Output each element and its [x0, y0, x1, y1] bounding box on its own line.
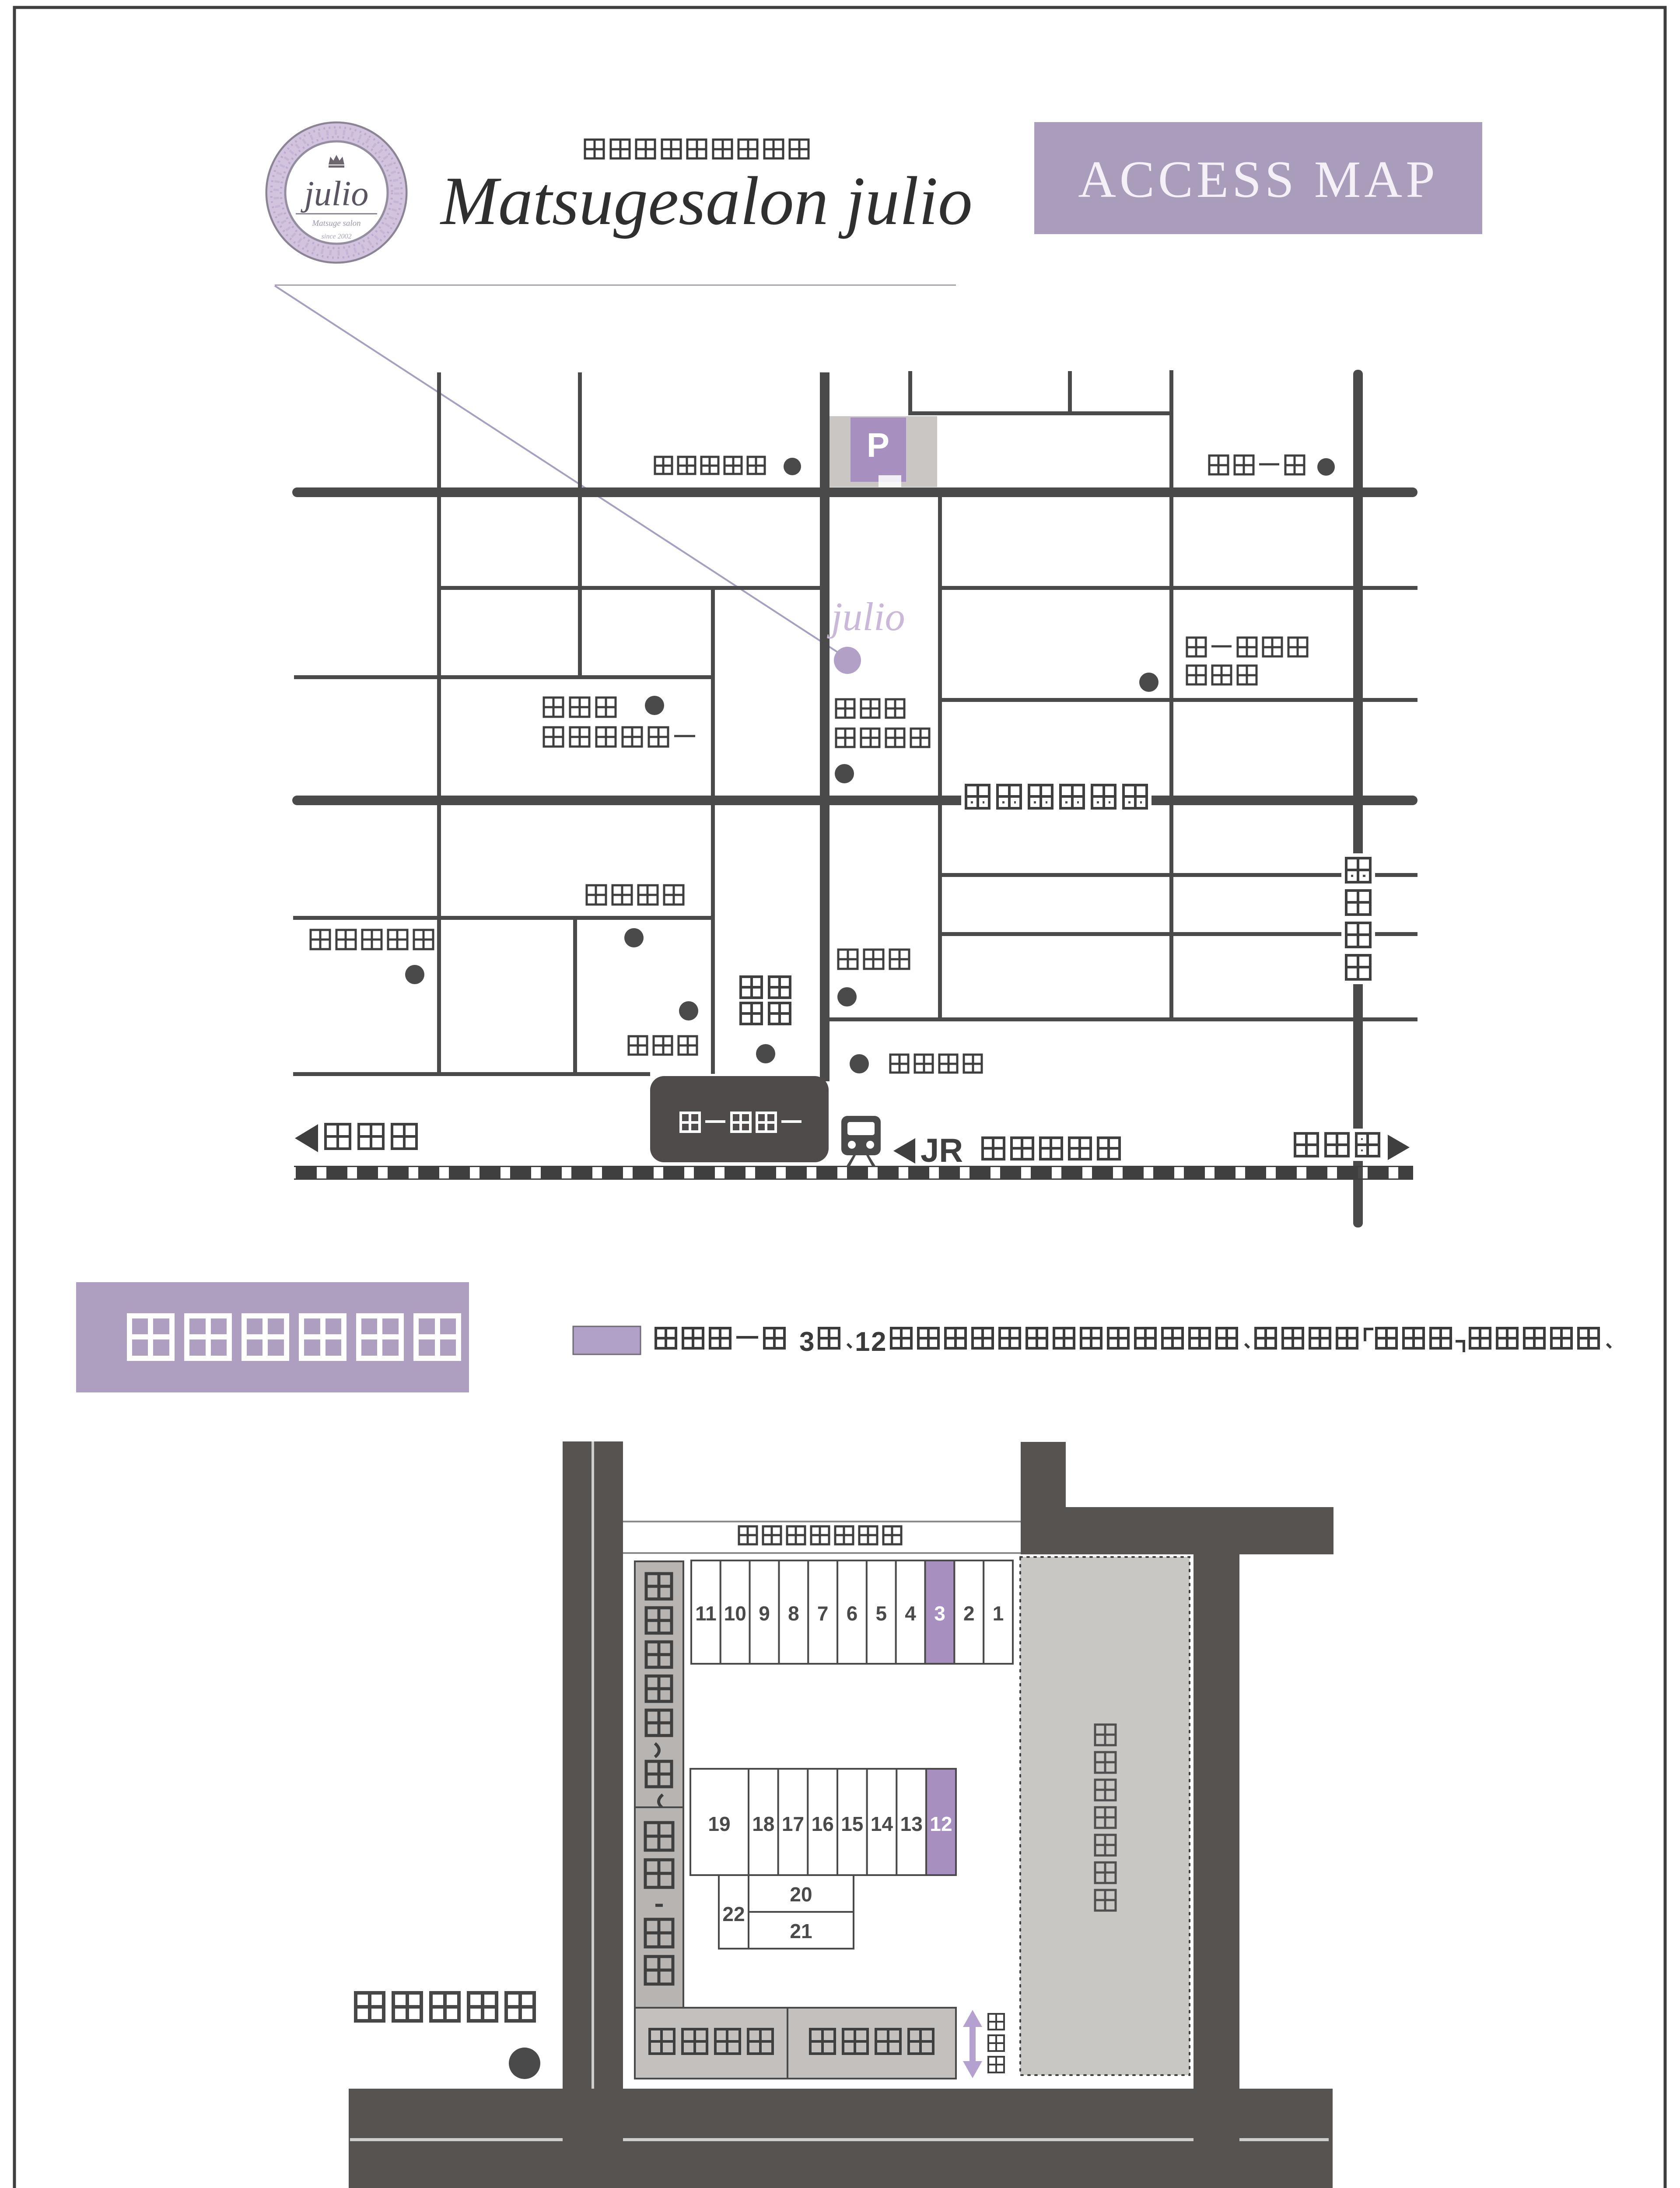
- svg-text:3: 3: [799, 1327, 814, 1357]
- svg-text:7: 7: [817, 1602, 829, 1625]
- svg-text:9: 9: [759, 1602, 770, 1625]
- svg-text:Matsuge salon: Matsuge salon: [311, 219, 360, 228]
- svg-text:14: 14: [871, 1813, 893, 1835]
- svg-text:ACCESS MAP: ACCESS MAP: [1078, 150, 1438, 208]
- svg-text:18: 18: [752, 1813, 774, 1835]
- svg-text:1: 1: [993, 1602, 1004, 1625]
- svg-text:13: 13: [900, 1813, 923, 1835]
- svg-text:17: 17: [782, 1813, 804, 1835]
- svg-text:julio: julio: [827, 594, 905, 639]
- svg-text:Matsugesalon julio: Matsugesalon julio: [440, 163, 973, 239]
- svg-text:5: 5: [876, 1602, 887, 1625]
- svg-text:2: 2: [871, 1327, 886, 1357]
- svg-text:16: 16: [812, 1813, 834, 1835]
- svg-text:22: 22: [722, 1903, 745, 1925]
- svg-text:1: 1: [855, 1327, 870, 1357]
- svg-text:20: 20: [790, 1883, 812, 1906]
- svg-text:6: 6: [847, 1602, 858, 1625]
- svg-text:8: 8: [788, 1602, 799, 1625]
- svg-text:2: 2: [963, 1602, 975, 1625]
- svg-text:P: P: [867, 426, 889, 464]
- svg-text:19: 19: [708, 1813, 730, 1835]
- svg-text:JR: JR: [920, 1132, 963, 1169]
- svg-text:since 2002: since 2002: [322, 233, 352, 240]
- svg-text:3: 3: [934, 1602, 945, 1625]
- svg-text:11: 11: [695, 1602, 717, 1625]
- svg-text:julio: julio: [301, 175, 369, 213]
- svg-text:4: 4: [905, 1602, 916, 1625]
- svg-text:12: 12: [930, 1813, 952, 1835]
- svg-text:21: 21: [790, 1920, 812, 1943]
- svg-text:15: 15: [841, 1813, 863, 1835]
- svg-text:10: 10: [724, 1602, 746, 1625]
